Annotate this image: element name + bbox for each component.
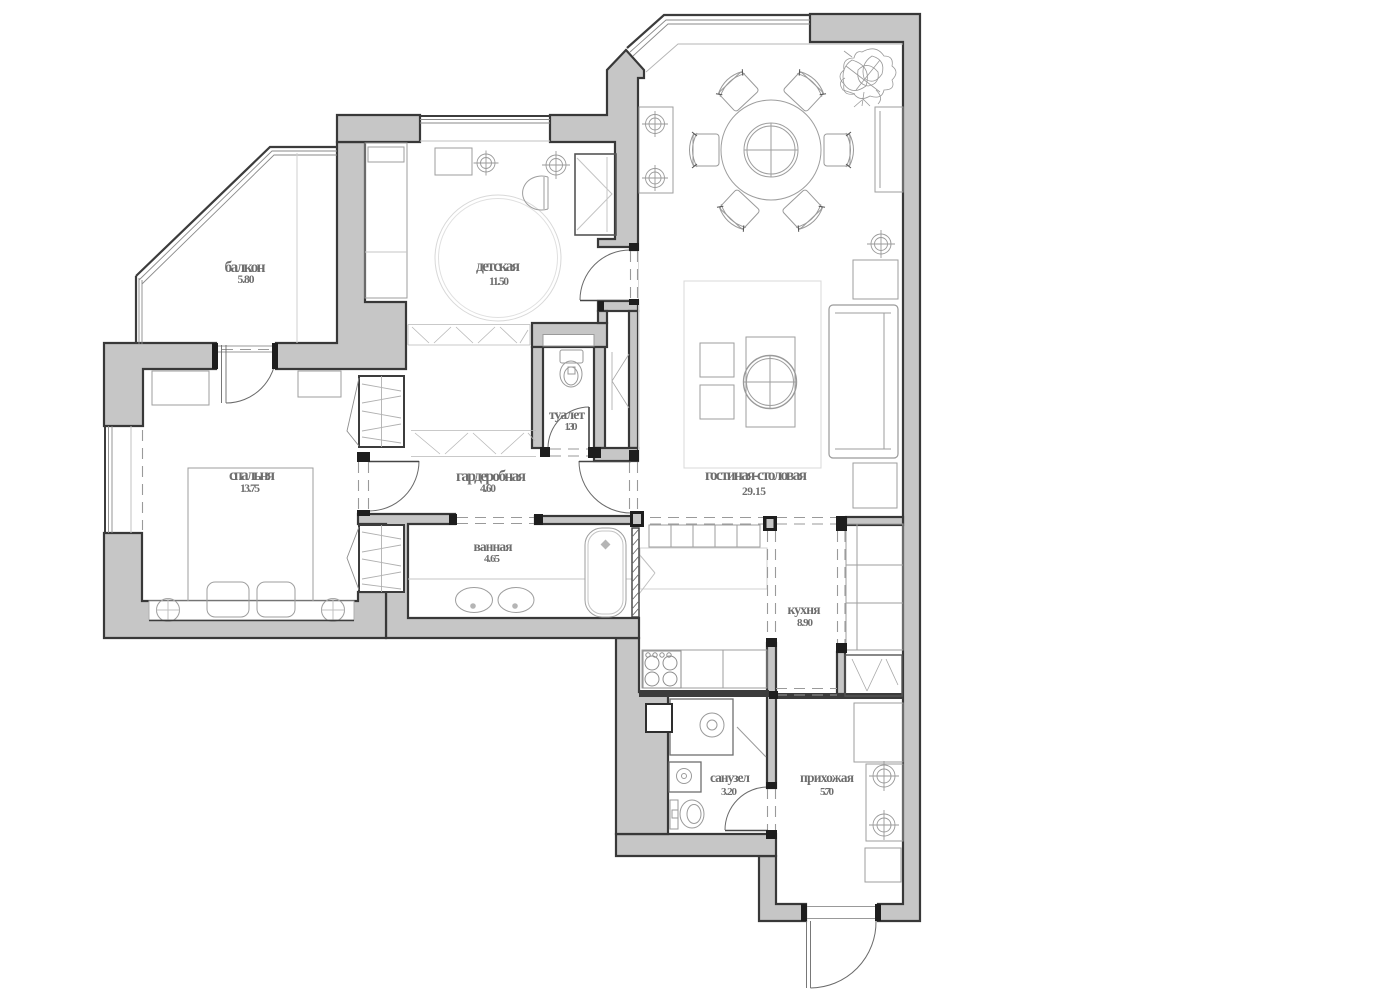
svg-text:гостиная-столовая: гостиная-столовая	[705, 467, 807, 484]
svg-text:29.15: 29.15	[742, 486, 766, 498]
svg-text:4.60: 4.60	[480, 483, 496, 495]
svg-text:5.70: 5.70	[820, 786, 835, 798]
svg-text:ванная: ванная	[474, 539, 513, 554]
svg-text:санузел: санузел	[710, 770, 750, 785]
svg-text:1.30: 1.30	[565, 421, 579, 433]
svg-text:11.50: 11.50	[489, 276, 509, 288]
svg-text:8.90: 8.90	[797, 617, 814, 629]
svg-text:кухня: кухня	[788, 602, 821, 617]
svg-text:13.75: 13.75	[240, 483, 260, 495]
svg-text:3.20: 3.20	[721, 786, 738, 798]
svg-text:туалет: туалет	[549, 407, 585, 422]
svg-text:спальня: спальня	[229, 467, 275, 484]
svg-text:5.80: 5.80	[238, 274, 255, 286]
svg-text:прихожая: прихожая	[800, 770, 854, 785]
svg-text:4.65: 4.65	[484, 553, 501, 565]
svg-text:детская: детская	[476, 258, 520, 275]
